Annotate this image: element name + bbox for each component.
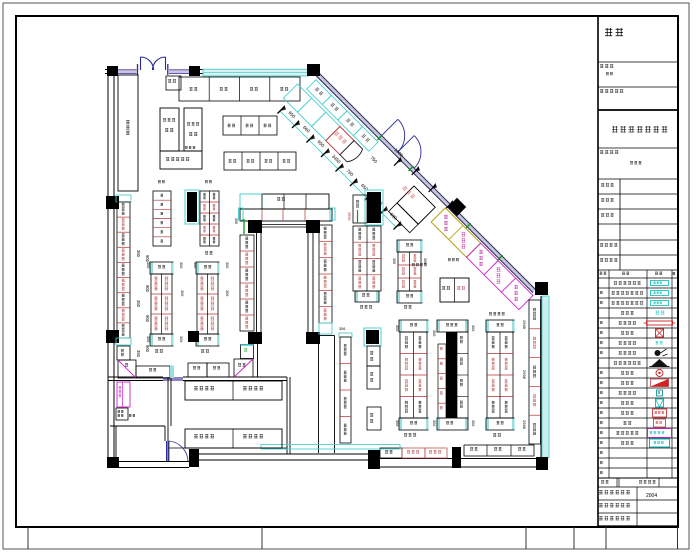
- svg-text:900: 900: [145, 285, 150, 293]
- svg-text:306: 306: [432, 420, 436, 426]
- svg-text:900: 900: [145, 315, 150, 323]
- svg-text:900: 900: [145, 345, 150, 353]
- svg-text:306: 306: [395, 325, 399, 331]
- svg-text:306: 306: [179, 336, 183, 342]
- svg-text:306: 306: [432, 330, 436, 336]
- svg-text:306: 306: [179, 262, 183, 268]
- svg-text:306: 306: [193, 262, 197, 268]
- svg-text:2998: 2998: [522, 370, 527, 380]
- svg-text:306: 306: [392, 258, 396, 264]
- svg-text:2998: 2998: [522, 420, 527, 430]
- svg-text:306: 306: [339, 327, 345, 331]
- svg-text:2998: 2998: [347, 212, 351, 220]
- svg-text:306: 306: [225, 262, 229, 268]
- svg-text:350: 350: [136, 350, 141, 358]
- svg-text:306: 306: [146, 336, 150, 342]
- svg-text:2004: 2004: [646, 493, 657, 499]
- svg-text:306: 306: [234, 218, 238, 224]
- svg-text:306: 306: [225, 290, 229, 296]
- svg-text:306: 306: [471, 420, 475, 426]
- svg-text:306: 306: [395, 420, 399, 426]
- svg-text:306: 306: [146, 262, 150, 268]
- svg-text:306: 306: [471, 325, 475, 331]
- svg-text:306: 306: [180, 290, 184, 296]
- svg-text:350: 350: [136, 300, 141, 308]
- svg-text:350: 350: [136, 250, 141, 258]
- svg-text:2998: 2998: [522, 320, 527, 330]
